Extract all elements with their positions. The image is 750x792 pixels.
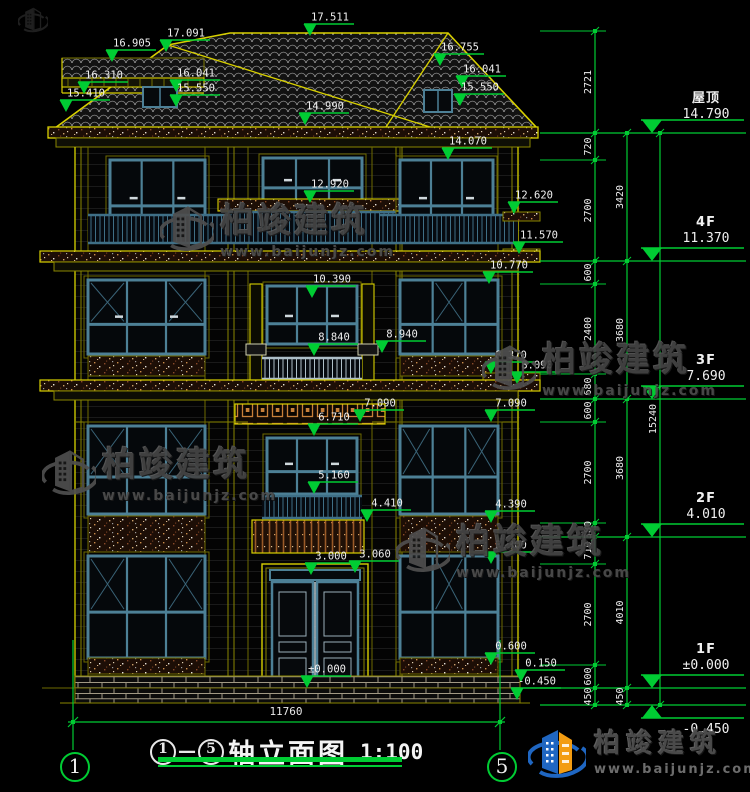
svg-text:12.920: 12.920 [311, 179, 349, 191]
floor-level-label: 4F11.370 [662, 215, 750, 246]
svg-text:2400: 2400 [583, 317, 594, 341]
svg-text:14.070: 14.070 [449, 136, 487, 148]
svg-text:8.090: 8.090 [521, 360, 553, 372]
svg-text:0.600: 0.600 [495, 641, 527, 653]
svg-text:3420: 3420 [615, 185, 626, 209]
svg-text:5.160: 5.160 [318, 470, 350, 482]
svg-text:600: 600 [583, 263, 594, 281]
svg-text:3.060: 3.060 [359, 549, 391, 561]
svg-text:3680: 3680 [615, 456, 626, 480]
svg-text:720: 720 [583, 137, 594, 155]
svg-text:15240: 15240 [648, 404, 659, 434]
svg-text:450: 450 [583, 687, 594, 705]
svg-text:±0.000: ±0.000 [308, 664, 346, 676]
svg-text:16.755: 16.755 [441, 42, 479, 54]
dimension-chain: 2721720270060024006806002700380710270060… [583, 27, 599, 709]
svg-text:11.570: 11.570 [520, 230, 558, 242]
brand-name: 柏竣建筑 [594, 723, 750, 760]
svg-text:7.090: 7.090 [495, 398, 527, 410]
svg-text:380: 380 [583, 521, 594, 539]
axis-bubble-right: 5 [487, 752, 517, 782]
svg-text:2700: 2700 [583, 460, 594, 484]
building-facade [40, 33, 540, 703]
brand-site: www.baijunjz.com [594, 762, 750, 777]
svg-text:10.390: 10.390 [313, 274, 351, 286]
brand-logo-icon [528, 720, 586, 780]
svg-text:14.990: 14.990 [306, 101, 344, 113]
svg-text:8.840: 8.840 [318, 332, 350, 344]
svg-text:12.620: 12.620 [515, 190, 553, 202]
floor-level-label: 3F7.690 [662, 353, 750, 384]
svg-text:4010: 4010 [615, 600, 626, 624]
floor-level-marker [641, 524, 744, 537]
svg-text:17.511: 17.511 [311, 12, 349, 24]
svg-text:15.410: 15.410 [67, 88, 105, 100]
axis-bubble-left: 1 [60, 752, 90, 782]
svg-text:4.410: 4.410 [371, 498, 403, 510]
svg-text:7.090: 7.090 [364, 398, 396, 410]
floor-level-marker [641, 248, 744, 261]
floor-level-label: 1F±0.000 [662, 642, 750, 673]
svg-text:4.390: 4.390 [495, 499, 527, 511]
brand-logo: 柏竣建筑 www.baijunjz.com [528, 720, 750, 780]
svg-text:16.041: 16.041 [463, 64, 501, 76]
elevation-marker: -0.450 [511, 676, 562, 701]
svg-text:3.000: 3.000 [315, 551, 347, 563]
floor-level-label: 屋顶14.790 [662, 87, 750, 122]
svg-text:10.770: 10.770 [490, 260, 528, 272]
overall-width-dimension: 11760 [246, 705, 326, 718]
title-underline-thick [158, 757, 402, 762]
svg-text:450: 450 [615, 687, 626, 705]
elevation-drawing: 16.90517.09117.51116.31016.04115.55015.4… [0, 0, 750, 792]
svg-text:680: 680 [583, 377, 594, 395]
svg-text:16.310: 16.310 [85, 70, 123, 82]
elevation-marker: 12.620 [508, 190, 559, 215]
svg-text:16.041: 16.041 [177, 68, 215, 80]
svg-text:710: 710 [583, 541, 594, 559]
cad-elevation-sheet: 16.90517.09117.51116.31016.04115.55015.4… [0, 0, 750, 792]
svg-text:17.091: 17.091 [167, 28, 205, 40]
floor-level-marker [641, 386, 744, 399]
svg-text:2721: 2721 [583, 70, 594, 94]
svg-text:600: 600 [583, 401, 594, 419]
floor-level-label: 2F4.010 [662, 491, 750, 522]
dimension-chain: 3420368036804010450 [615, 129, 631, 709]
svg-text:15.550: 15.550 [177, 83, 215, 95]
svg-text:16.905: 16.905 [113, 38, 151, 50]
svg-text:2700: 2700 [583, 602, 594, 626]
svg-text:2700: 2700 [583, 198, 594, 222]
svg-text:15.550: 15.550 [461, 82, 499, 94]
svg-text:0.150: 0.150 [525, 658, 557, 670]
floor-level-marker [641, 705, 744, 718]
svg-text:-0.450: -0.450 [518, 676, 556, 688]
title-underline-thin [158, 765, 402, 767]
svg-text:6.710: 6.710 [318, 412, 350, 424]
svg-text:3680: 3680 [615, 318, 626, 342]
svg-text:3.300: 3.300 [495, 540, 527, 552]
floor-level-marker [641, 675, 744, 688]
svg-text:8.940: 8.940 [386, 329, 418, 341]
svg-text:600: 600 [583, 667, 594, 685]
